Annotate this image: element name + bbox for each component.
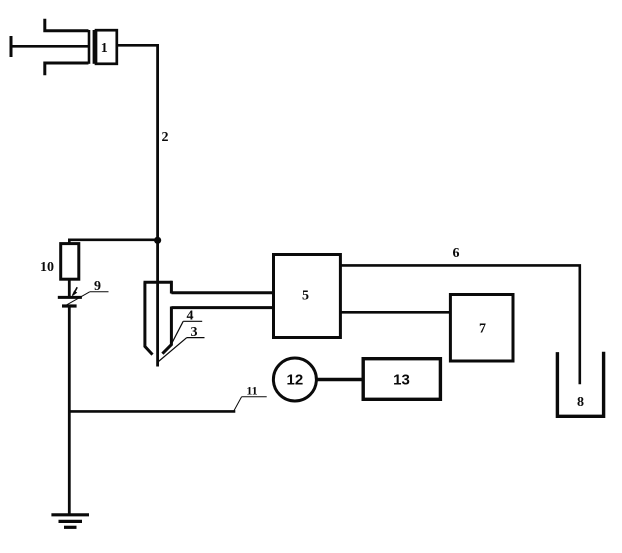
svg-text:1: 1 (101, 41, 108, 56)
svg-text:12: 12 (287, 372, 304, 389)
svg-text:5: 5 (302, 289, 309, 304)
svg-text:10: 10 (40, 260, 54, 275)
svg-text:2: 2 (162, 130, 169, 145)
svg-text:6: 6 (453, 246, 460, 261)
svg-text:8: 8 (577, 395, 584, 410)
svg-text:7: 7 (479, 322, 486, 337)
svg-text:9: 9 (94, 279, 101, 294)
svg-text:4: 4 (187, 309, 194, 324)
svg-text:3: 3 (191, 325, 198, 340)
svg-text:13: 13 (393, 372, 410, 389)
svg-text:11: 11 (246, 384, 257, 398)
